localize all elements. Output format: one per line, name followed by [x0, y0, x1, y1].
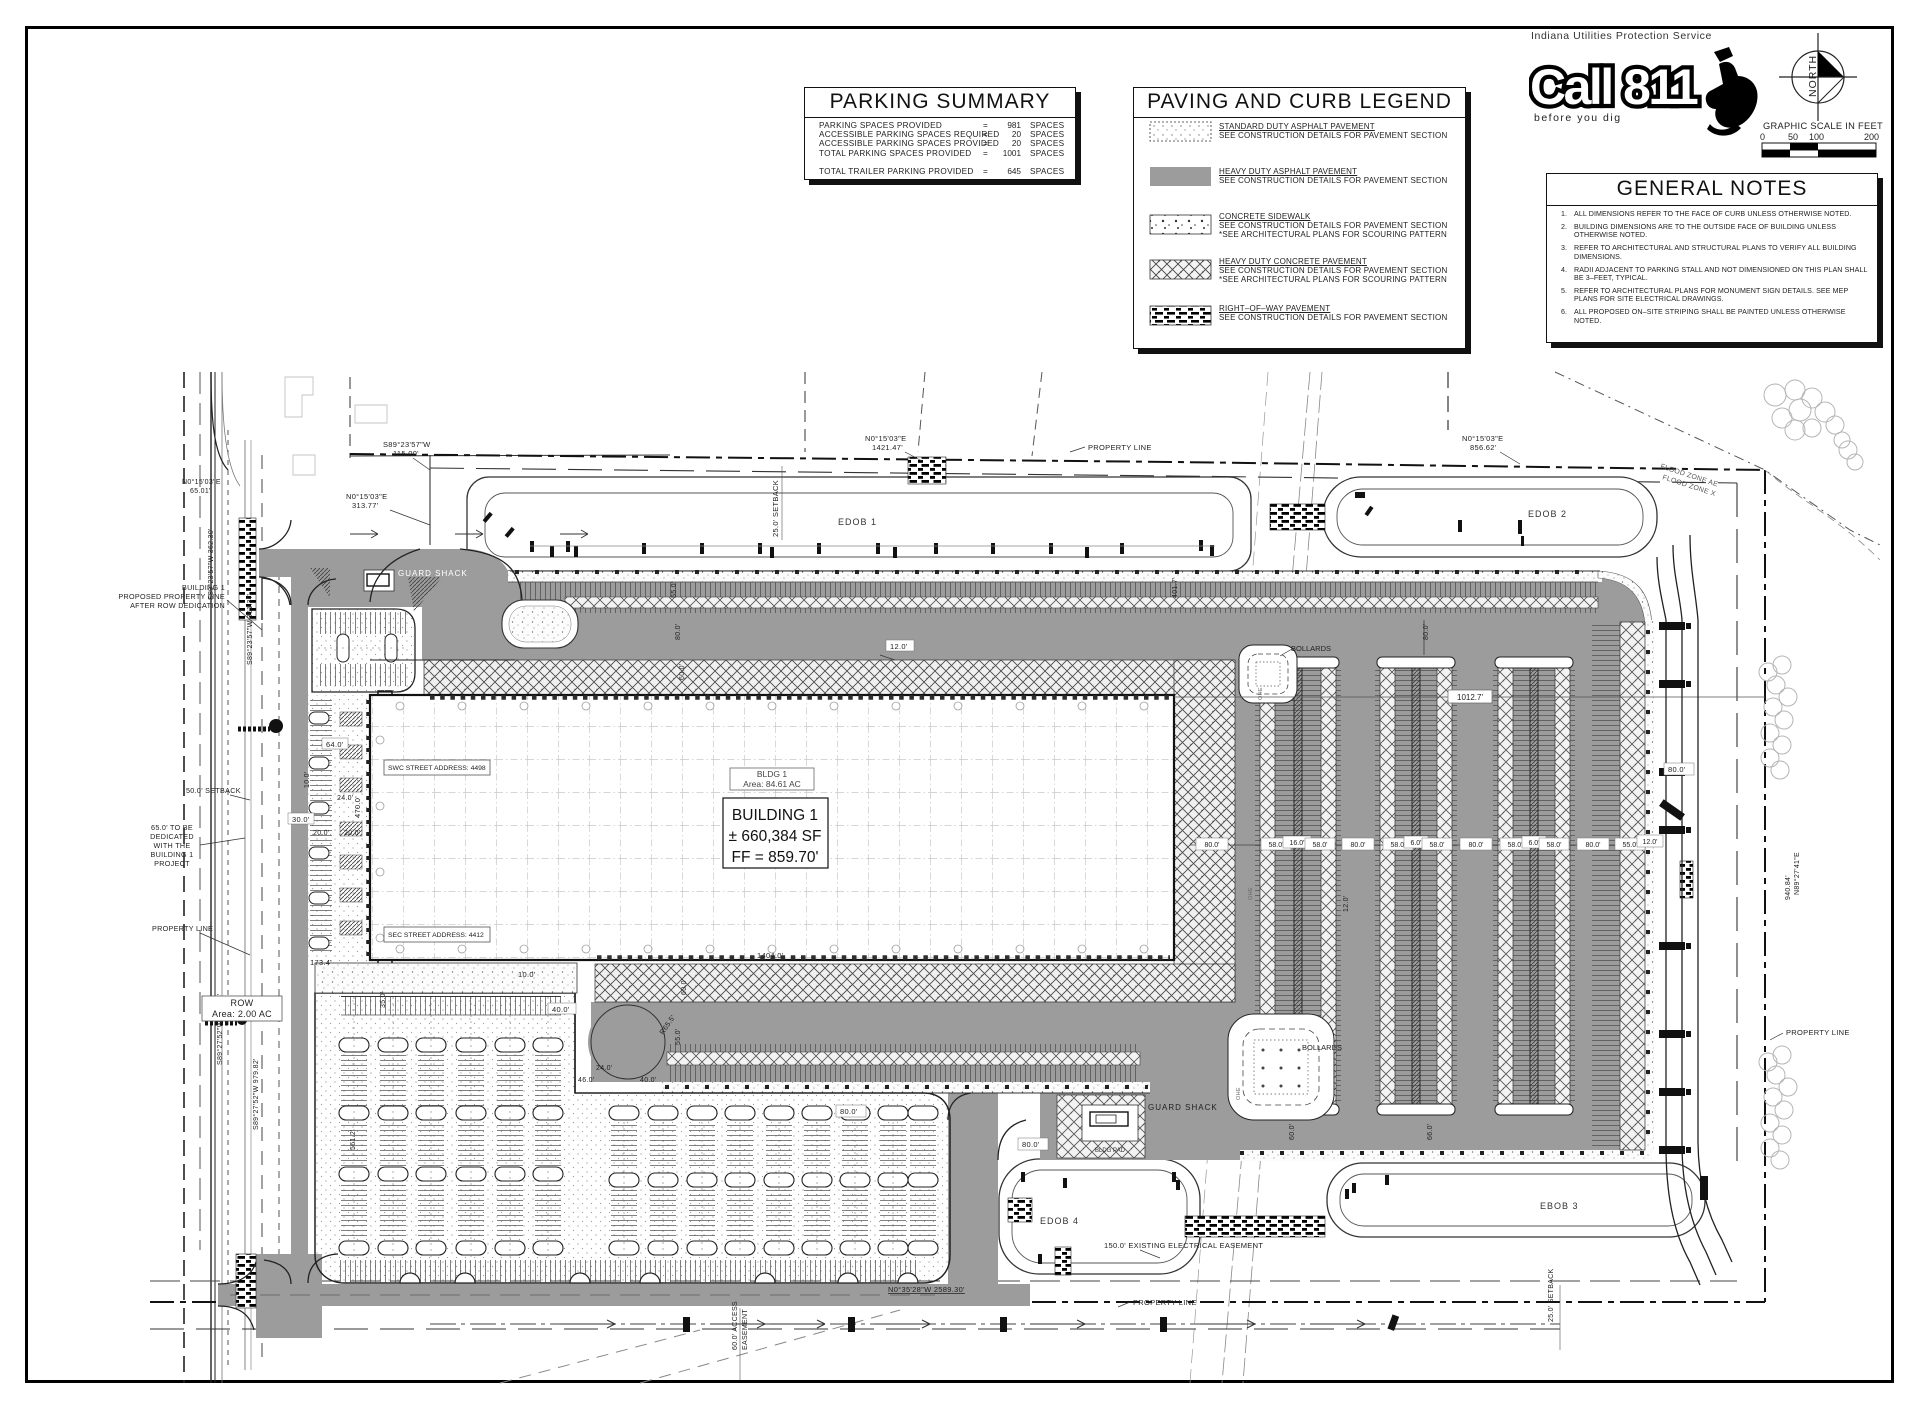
- svg-text:20.0': 20.0': [344, 830, 360, 837]
- svg-text:80.0': 80.0': [840, 1107, 858, 1116]
- svg-text:6.0': 6.0': [1528, 840, 1539, 847]
- svg-text:OHE: OHE: [1258, 687, 1264, 700]
- svg-text:WITH THE: WITH THE: [153, 841, 190, 850]
- svg-text:BUILDING 1: BUILDING 1: [151, 850, 194, 859]
- svg-text:EDOB 2: EDOB 2: [1528, 509, 1567, 519]
- svg-text:58.0': 58.0': [1313, 842, 1328, 849]
- svg-text:80.0': 80.0': [1586, 842, 1601, 849]
- svg-text:SEC STREET ADDRESS: 4412: SEC STREET ADDRESS: 4412: [388, 932, 484, 939]
- svg-text:BUILDING 1: BUILDING 1: [732, 807, 818, 824]
- svg-text:OHE: OHE: [1248, 887, 1254, 900]
- svg-text:24.0': 24.0': [337, 795, 353, 802]
- svg-text:46.0': 46.0': [578, 1077, 594, 1084]
- svg-text:S89°23'57"W 362.30': S89°23'57"W 362.30': [207, 528, 215, 600]
- svg-text:S89°23'57"W 361.37': S89°23'57"W 361.37': [246, 593, 254, 665]
- svg-text:GUARD SHACK: GUARD SHACK: [398, 569, 468, 578]
- svg-text:30.0': 30.0': [292, 815, 310, 824]
- svg-text:12.0': 12.0': [1643, 839, 1658, 846]
- svg-text:313.77': 313.77': [352, 501, 379, 510]
- svg-text:BOLLARDS: BOLLARDS: [1302, 1043, 1342, 1052]
- svg-text:6.0': 6.0': [1410, 840, 1421, 847]
- svg-text:BUILDING 1: BUILDING 1: [182, 583, 225, 592]
- svg-text:20.0': 20.0': [313, 830, 329, 837]
- svg-text:58.0': 58.0': [1430, 842, 1445, 849]
- svg-text:55.0': 55.0': [671, 582, 678, 598]
- svg-text:66.0': 66.0': [1427, 1124, 1434, 1140]
- svg-text:60.0': 60.0': [681, 979, 688, 995]
- svg-text:80.0': 80.0': [1205, 842, 1220, 849]
- svg-text:S89°23'57"W: S89°23'57"W: [383, 440, 431, 449]
- svg-text:N89°27'41"E: N89°27'41"E: [1793, 852, 1801, 895]
- svg-text:25.0' SETBACK: 25.0' SETBACK: [1548, 1268, 1555, 1322]
- svg-text:401.7': 401.7': [1172, 577, 1179, 598]
- svg-text:DEDICATED: DEDICATED: [150, 832, 194, 841]
- svg-text:12.0': 12.0': [890, 642, 908, 651]
- svg-text:EDOB 4: EDOB 4: [1040, 1216, 1079, 1226]
- svg-text:PROPERTY LINE: PROPERTY LINE: [1088, 443, 1152, 452]
- svg-text:40.0': 40.0': [640, 1077, 656, 1084]
- svg-text:BOLLARDS: BOLLARDS: [1291, 644, 1331, 653]
- svg-text:OHE: OHE: [1236, 1087, 1242, 1100]
- svg-text:10.0': 10.0': [304, 772, 311, 788]
- svg-text:150.0' EXISTING ELECTRICAL: 150.0' EXISTING ELECTRICAL EASEMENT: [1104, 1241, 1263, 1250]
- svg-text:80.0': 80.0': [1668, 765, 1686, 774]
- svg-text:N0°15'03"E: N0°15'03"E: [1462, 434, 1503, 443]
- svg-text:EDOB 1: EDOB 1: [838, 517, 877, 527]
- svg-text:PROPERTY LINE: PROPERTY LINE: [152, 924, 213, 933]
- svg-text:1421.47': 1421.47': [872, 443, 903, 452]
- svg-text:N0°15'03"E: N0°15'03"E: [865, 434, 906, 443]
- svg-text:Area: 84.61 AC: Area: 84.61 AC: [743, 779, 801, 789]
- svg-text:60.0' ACCESS: 60.0' ACCESS: [732, 1301, 739, 1350]
- svg-text:58.0': 58.0': [1391, 842, 1406, 849]
- svg-text:65.01': 65.01': [190, 488, 211, 495]
- svg-text:BLDG 1: BLDG 1: [757, 769, 788, 779]
- svg-text:80.0': 80.0': [675, 624, 682, 640]
- svg-text:470.0': 470.0': [353, 796, 362, 818]
- svg-text:± 660,384 SF: ± 660,384 SF: [729, 828, 822, 845]
- svg-text:S89°27'52"W 979.82': S89°27'52"W 979.82': [252, 1058, 260, 1130]
- svg-text:64.0': 64.0': [326, 740, 344, 749]
- svg-text:856.62': 856.62': [1470, 443, 1497, 452]
- svg-text:40.0': 40.0': [552, 1005, 570, 1014]
- svg-text:BLDG PAD: BLDG PAD: [1095, 1148, 1126, 1154]
- svg-text:80.0': 80.0': [1351, 842, 1366, 849]
- svg-text:65.0' TO BE: 65.0' TO BE: [151, 823, 193, 832]
- svg-text:PROJECT: PROJECT: [154, 859, 190, 868]
- svg-text:80.0': 80.0': [1022, 1140, 1040, 1149]
- svg-text:561.2': 561.2': [350, 1129, 357, 1150]
- svg-text:SWC STREET ADDRESS: 4498: SWC STREET ADDRESS: 4498: [388, 765, 486, 772]
- svg-text:Area: 2.00 AC: Area: 2.00 AC: [212, 1009, 272, 1019]
- svg-text:115.00': 115.00': [393, 449, 419, 458]
- svg-text:EBOB 3: EBOB 3: [1540, 1201, 1579, 1211]
- svg-text:12.0': 12.0': [1343, 896, 1350, 912]
- svg-text:58.0': 58.0': [1269, 842, 1284, 849]
- svg-text:940.84': 940.84': [1785, 875, 1792, 900]
- svg-text:1012.7': 1012.7': [1457, 693, 1483, 702]
- svg-text:24.0': 24.0': [596, 1065, 612, 1072]
- svg-text:25.0' SETBACK: 25.0' SETBACK: [771, 480, 780, 537]
- svg-text:AFTER ROW DEDICATION: AFTER ROW DEDICATION: [130, 601, 225, 610]
- svg-text:58.0': 58.0': [1508, 842, 1523, 849]
- svg-text:PROPERTY LINE: PROPERTY LINE: [1133, 1298, 1197, 1307]
- svg-text:N0°35'28"W 2589.30': N0°35'28"W 2589.30': [888, 1285, 965, 1294]
- svg-text:ROW: ROW: [231, 998, 254, 1008]
- svg-text:60.0': 60.0': [1289, 1124, 1296, 1140]
- svg-text:173.4': 173.4': [310, 958, 332, 967]
- svg-text:N0°15'03"E: N0°15'03"E: [346, 492, 387, 501]
- svg-text:EASEMENT: EASEMENT: [742, 1309, 749, 1350]
- svg-text:55.0': 55.0': [1623, 842, 1638, 849]
- svg-text:16.0': 16.0': [1290, 840, 1305, 847]
- svg-text:60.0': 60.0': [679, 664, 686, 680]
- svg-text:PROPERTY LINE: PROPERTY LINE: [1786, 1028, 1850, 1037]
- svg-text:55.0': 55.0': [675, 1029, 682, 1045]
- svg-text:50.0' SETBACK: 50.0' SETBACK: [186, 786, 241, 795]
- svg-text:FF = 859.70': FF = 859.70': [732, 849, 819, 866]
- svg-text:10.0': 10.0': [518, 970, 536, 979]
- svg-text:58.0': 58.0': [1547, 842, 1562, 849]
- svg-text:N0°15'03"E: N0°15'03"E: [182, 478, 221, 486]
- svg-text:80.0': 80.0': [1469, 842, 1484, 849]
- svg-text:35.0': 35.0': [380, 992, 387, 1008]
- svg-text:1404.0': 1404.0': [757, 951, 784, 960]
- svg-text:GUARD SHACK: GUARD SHACK: [1148, 1103, 1218, 1112]
